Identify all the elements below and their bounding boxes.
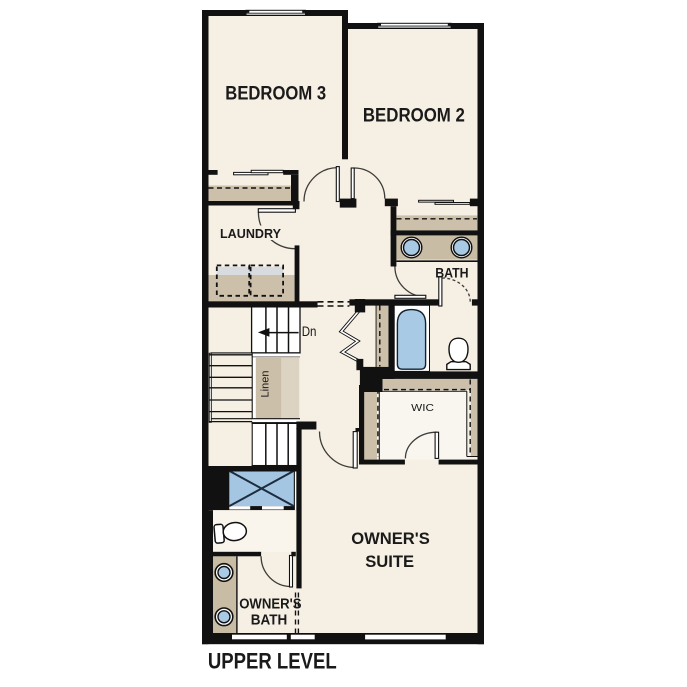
svg-text:BEDROOM 3: BEDROOM 3 — [225, 83, 326, 105]
svg-text:BATH: BATH — [251, 612, 287, 629]
svg-text:BEDROOM 2: BEDROOM 2 — [363, 105, 465, 127]
svg-text:WIC: WIC — [411, 402, 434, 414]
svg-text:BATH: BATH — [435, 264, 468, 280]
svg-text:OWNER'S: OWNER'S — [239, 596, 301, 613]
svg-text:UPPER LEVEL: UPPER LEVEL — [208, 649, 337, 674]
svg-text:LAUNDRY: LAUNDRY — [220, 226, 281, 241]
svg-text:OWNER'S: OWNER'S — [351, 529, 430, 548]
svg-text:Dn: Dn — [302, 324, 317, 340]
svg-text:Linen: Linen — [259, 371, 271, 398]
svg-text:SUITE: SUITE — [365, 552, 414, 571]
